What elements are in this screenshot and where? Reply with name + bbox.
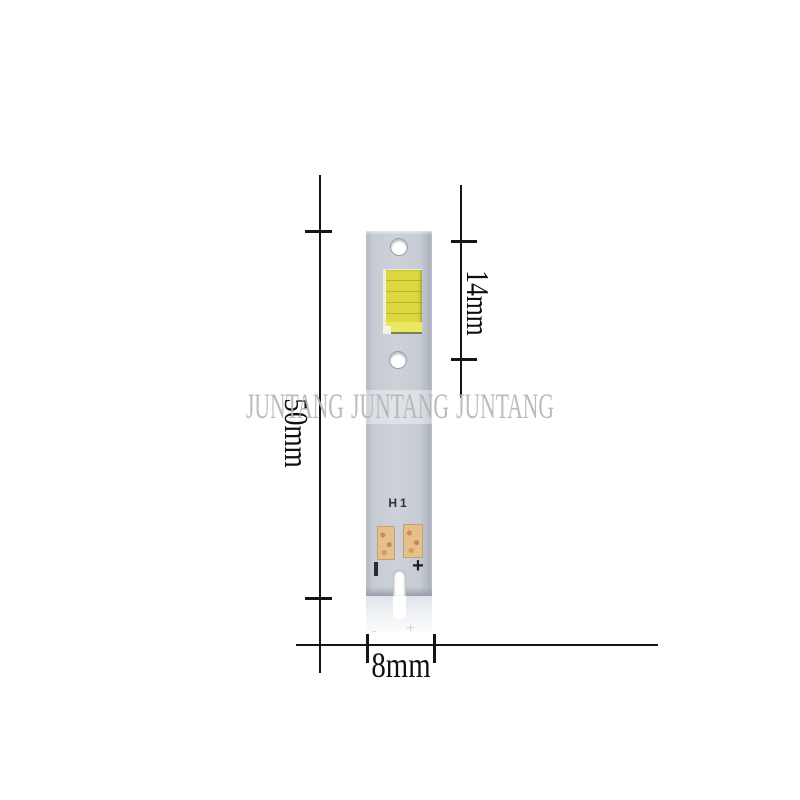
dimension-tick-height-top <box>305 230 332 233</box>
led-cob-chip <box>383 269 422 334</box>
reflection-slot <box>393 596 406 620</box>
mounting-hole-top <box>390 238 408 256</box>
pcb-model-label: H1 <box>369 496 429 510</box>
solder-pad-positive <box>403 524 423 558</box>
dimension-tick-led-span-bottom <box>451 358 477 361</box>
watermark-text: JUNTANG JUNTANG JUNTANG <box>160 385 640 427</box>
bottom-slot <box>393 571 406 596</box>
positive-terminal-mark: + <box>408 555 428 578</box>
chip-corner-highlight <box>383 326 391 334</box>
reflection-negative-mark: - <box>372 622 377 638</box>
solder-pad-negative <box>377 526 395 560</box>
reflection-positive-mark: + <box>406 620 415 638</box>
dimension-tick-height-bottom <box>305 597 332 600</box>
dimension-tick-led-span-top <box>451 240 477 243</box>
pcb-reflection: - + <box>366 596 432 638</box>
mounting-hole-middle <box>389 351 407 369</box>
dimension-label-width: 8mm <box>361 650 441 680</box>
dimension-line-width <box>296 644 658 646</box>
dimension-label-led-span: 14mm <box>465 263 491 343</box>
negative-terminal-mark <box>374 562 378 576</box>
chip-bottom-strip <box>386 322 422 334</box>
product-dimension-diagram: JUNTANG JUNTANG JUNTANG H1 + - + 50mm 14… <box>0 0 800 800</box>
